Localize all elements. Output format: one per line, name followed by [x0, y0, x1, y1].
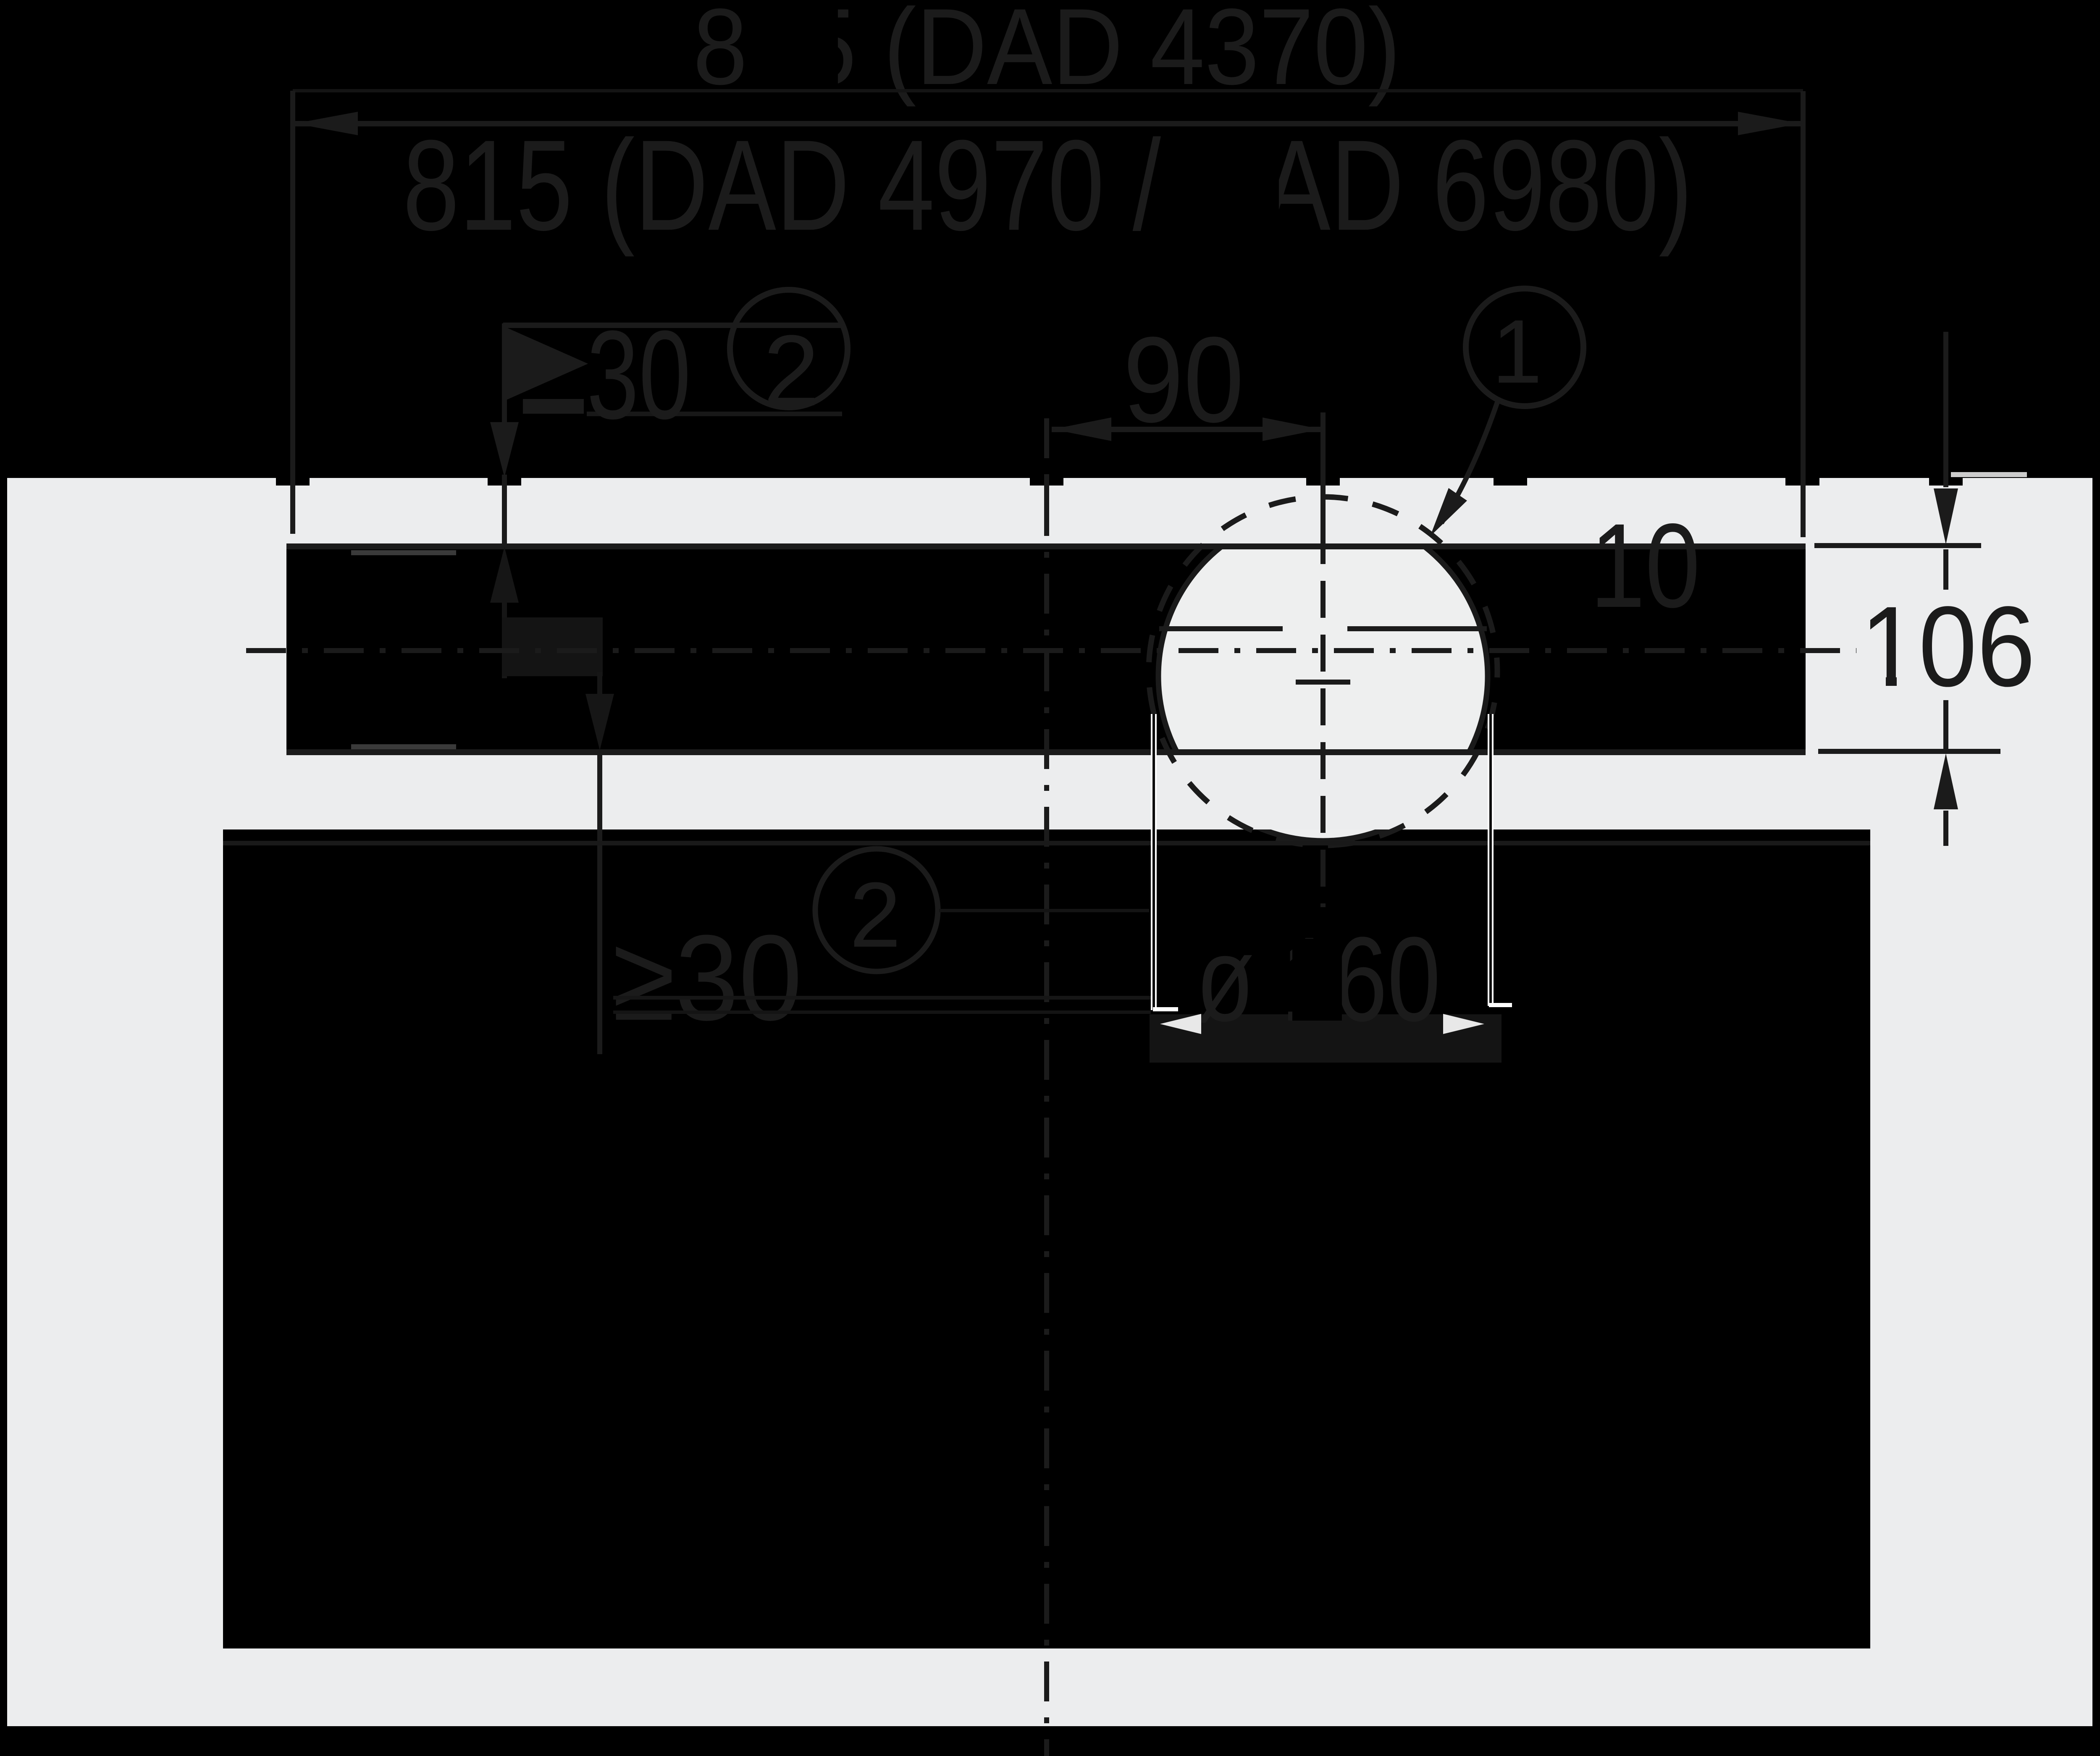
svg-text:≥30: ≥30 [612, 910, 802, 1046]
svg-text:2: 2 [763, 314, 819, 427]
svg-text:106: 106 [1860, 583, 2035, 710]
svg-text:1: 1 [1492, 301, 1542, 402]
svg-text:815 (DAD 4970 / DAD 6980): 815 (DAD 4970 / DAD 6980) [403, 113, 1693, 258]
svg-text:30: 30 [587, 304, 691, 445]
svg-text:10: 10 [1590, 499, 1700, 633]
svg-text:2: 2 [850, 863, 901, 966]
